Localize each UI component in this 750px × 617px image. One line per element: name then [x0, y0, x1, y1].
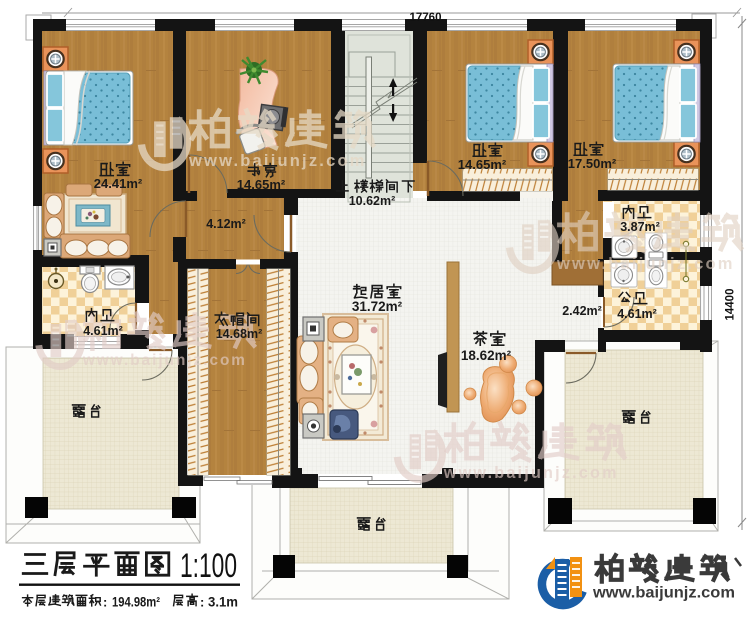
svg-text:10.62m²: 10.62m² [349, 194, 396, 208]
svg-text:3.1m: 3.1m [208, 595, 238, 610]
svg-text:24.41m²: 24.41m² [94, 176, 143, 191]
svg-text:3.87m²: 3.87m² [620, 220, 660, 234]
svg-text:14.65m²: 14.65m² [458, 157, 507, 172]
svg-text:www.baijunjz.com: www.baijunjz.com [443, 464, 619, 482]
svg-text:1:100: 1:100 [180, 547, 237, 585]
svg-text:4.12m²: 4.12m² [206, 217, 246, 231]
svg-text:194.98m²: 194.98m² [112, 595, 160, 610]
svg-text:14.65m²: 14.65m² [237, 177, 286, 192]
svg-text::: : [200, 595, 204, 610]
svg-text:17.50m²: 17.50m² [568, 156, 617, 171]
svg-text:www.baijunjz.com: www.baijunjz.com [188, 152, 367, 170]
svg-text:17760: 17760 [410, 12, 442, 24]
svg-text:4.61m²: 4.61m² [83, 324, 123, 338]
svg-text:2.42m²: 2.42m² [562, 304, 602, 318]
svg-text:www.baijunjz.com: www.baijunjz.com [82, 352, 247, 369]
svg-text:31.72m²: 31.72m² [352, 299, 403, 314]
svg-text:14.68m²: 14.68m² [216, 327, 263, 341]
svg-text:18.62m²: 18.62m² [461, 348, 512, 363]
svg-text::: : [103, 595, 107, 610]
svg-text:www.baijunjz.com: www.baijunjz.com [556, 255, 735, 273]
svg-text:4.61m²: 4.61m² [617, 307, 657, 321]
svg-text:www.baijunjz.com: www.baijunjz.com [592, 585, 735, 602]
svg-text:14400: 14400 [725, 289, 737, 321]
